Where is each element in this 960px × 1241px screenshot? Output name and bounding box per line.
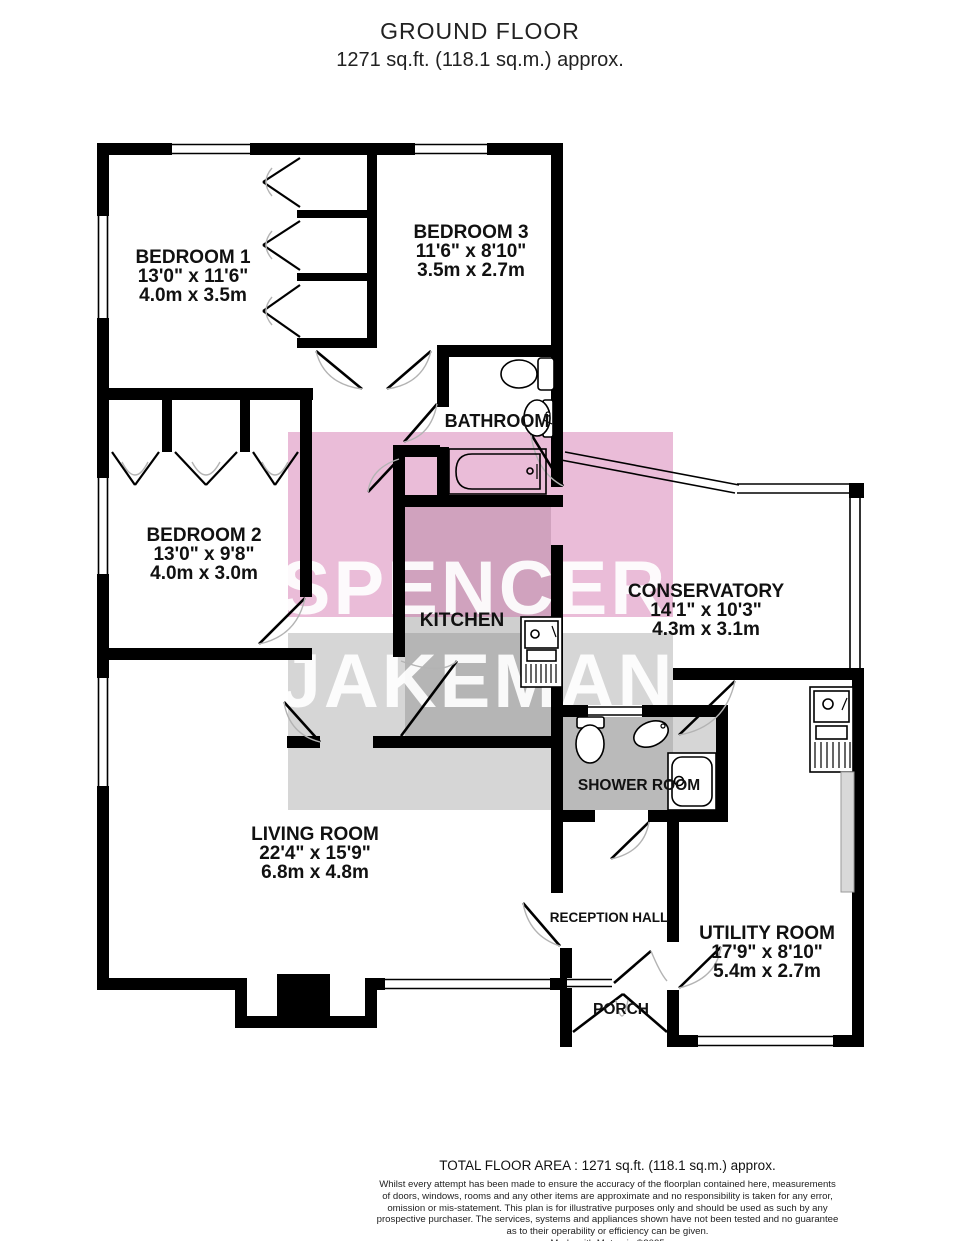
closet-bifold <box>263 221 300 270</box>
room-dims-metric: 3.5m x 2.7m <box>417 260 525 281</box>
floor-plan-canvas: SPENCER JAKEMAN <box>0 0 960 1241</box>
room-name: BEDROOM 3 <box>413 222 528 243</box>
floor-title: GROUND FLOOR <box>0 18 960 45</box>
floorplan-page: GROUND FLOOR 1271 sq.ft. (118.1 sq.m.) a… <box>0 0 960 1241</box>
disclaimer-line: prospective purchaser. The services, sys… <box>255 1214 960 1226</box>
closet-bifold <box>263 285 300 337</box>
window <box>172 143 250 155</box>
room-dims-metric: 6.8m x 4.8m <box>261 862 369 883</box>
label-bedroom1: BEDROOM 1 13'0" x 11'6" 4.0m x 3.5m <box>135 247 251 306</box>
toilet-icon <box>576 717 604 763</box>
footer: TOTAL FLOOR AREA : 1271 sq.ft. (118.1 sq… <box>255 1158 960 1241</box>
floor-area-subtitle: 1271 sq.ft. (118.1 sq.m.) approx. <box>0 49 960 72</box>
front-door <box>614 951 667 983</box>
room-labels: BEDROOM 1 13'0" x 11'6" 4.0m x 3.5m BEDR… <box>135 222 834 1018</box>
window <box>97 478 109 574</box>
disclaimer-line: Whilst every attempt has been made to en… <box>255 1179 960 1191</box>
closet-bifold <box>263 158 300 207</box>
label-bathroom: BATHROOM <box>445 411 550 431</box>
room-dims-imperial: 13'0" x 11'6" <box>138 266 249 287</box>
room-dims-imperial: 13'0" x 9'8" <box>153 544 254 565</box>
door-shower-hall <box>611 822 649 859</box>
label-conservatory: CONSERVATORY 14'1" x 10'3" 4.3m x 3.1m <box>628 581 785 640</box>
label-living-room: LIVING ROOM 22'4" x 15'9" 6.8m x 4.8m <box>251 824 379 883</box>
room-dims-imperial: 14'1" x 10'3" <box>650 600 762 621</box>
utility-worktop <box>841 772 854 892</box>
disclaimer-line: of doors, windows, rooms and any other i… <box>255 1191 960 1203</box>
room-name: BEDROOM 1 <box>135 247 251 268</box>
label-bedroom3: BEDROOM 3 11'6" x 8'10" 3.5m x 2.7m <box>413 222 528 281</box>
room-dims-metric: 4.3m x 3.1m <box>652 619 760 640</box>
room-dims-imperial: 11'6" x 8'10" <box>416 241 527 262</box>
room-dims-metric: 5.4m x 2.7m <box>713 961 821 982</box>
room-dims-imperial: 22'4" x 15'9" <box>259 843 371 864</box>
chimney-breast <box>277 974 330 1016</box>
window <box>588 705 642 717</box>
room-name: BEDROOM 2 <box>146 525 261 546</box>
room-dims-imperial: 17'9" x 8'10" <box>711 942 823 963</box>
closet-doors <box>112 158 300 485</box>
label-utility-room: UTILITY ROOM 17'9" x 8'10" 5.4m x 2.7m <box>699 923 835 982</box>
window <box>567 978 612 988</box>
utility-sink-unit <box>810 687 853 772</box>
room-name: UTILITY ROOM <box>699 923 835 944</box>
disclaimer-line: omission or mis-statement. This plan is … <box>255 1203 960 1215</box>
label-bedroom2: BEDROOM 2 13'0" x 9'8" 4.0m x 3.0m <box>146 525 261 584</box>
total-floor-area: TOTAL FLOOR AREA : 1271 sq.ft. (118.1 sq… <box>255 1158 960 1173</box>
page-title: GROUND FLOOR 1271 sq.ft. (118.1 sq.m.) a… <box>0 18 960 72</box>
label-shower-room: SHOWER ROOM <box>578 777 700 794</box>
label-reception-hall: RECEPTION HALL <box>550 910 669 925</box>
disclaimer-line: as to their operability or efficiency ca… <box>255 1226 960 1238</box>
disclaimer: Whilst every attempt has been made to en… <box>255 1179 960 1241</box>
kitchen-sink-unit <box>521 617 562 687</box>
room-name: LIVING ROOM <box>251 824 379 845</box>
toilet-icon <box>501 358 554 390</box>
door-bedroom3 <box>387 351 431 389</box>
door-bedroom1 <box>316 351 362 389</box>
label-porch: PORCH <box>593 1001 649 1018</box>
closet-bifold <box>112 452 159 485</box>
window <box>698 1035 833 1047</box>
window <box>385 978 550 990</box>
closet-bifold <box>175 452 237 485</box>
window <box>97 678 109 786</box>
label-kitchen: KITCHEN <box>420 610 504 631</box>
room-dims-metric: 4.0m x 3.5m <box>139 285 247 306</box>
window <box>415 143 487 155</box>
room-dims-metric: 4.0m x 3.0m <box>150 563 258 584</box>
room-name: CONSERVATORY <box>628 581 785 602</box>
window <box>97 216 109 318</box>
